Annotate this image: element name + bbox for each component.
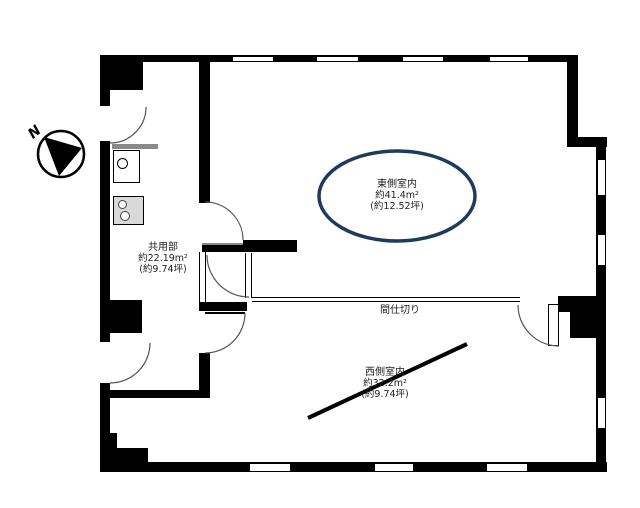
partition-right-block: [558, 296, 597, 312]
west-room-name: 西側室内: [338, 367, 432, 378]
partition-label: 間仕切り: [358, 305, 442, 316]
window-right-1: [598, 160, 605, 195]
wall-bottom: [100, 462, 607, 472]
west-room-area-m2: 約32.2m²: [338, 378, 432, 389]
window-top-4: [490, 57, 528, 61]
pilaster-left-middle: [107, 300, 142, 333]
partition-right-block-lower: [570, 312, 597, 338]
window-top-2: [317, 57, 358, 61]
partition-line: [252, 297, 520, 302]
wall-stub-right: [243, 240, 297, 252]
window-top-1: [233, 57, 273, 61]
door-leaf-corridor-west: [205, 312, 245, 314]
door-arc-entry-lower: [110, 343, 150, 383]
kitchen-stove: [113, 196, 144, 225]
door-arc-center: [207, 255, 249, 297]
window-bottom-2: [375, 464, 413, 471]
wall-westroom-top-bar: [199, 302, 247, 311]
door-leaf-partition: [548, 304, 559, 346]
partition-label-text: 間仕切り: [358, 305, 442, 316]
east-room-area-tsubo: (約12.52坪): [327, 201, 467, 212]
east-room-label: 東側室内 約41.4m² (約12.52坪): [327, 179, 467, 212]
wall-notch-vertical: [567, 55, 578, 143]
east-room-name: 東側室内: [327, 179, 467, 190]
door-leaf-center: [245, 253, 252, 298]
window-top-3: [403, 57, 443, 61]
stove-burner-icon-1: [118, 200, 127, 209]
stove-burner-icon-2: [120, 211, 130, 221]
west-room-label: 西側室内 約32.2m² (約9.74坪): [338, 367, 432, 400]
door-opening-left-lower: [100, 342, 110, 383]
window-right-3: [598, 398, 605, 428]
west-room-area-tsubo: (約9.74坪): [338, 389, 432, 400]
wall-interior-vertical-upper: [199, 58, 210, 203]
door-opening-left-upper: [100, 106, 110, 141]
compass-n-label: N: [25, 122, 44, 142]
door-arc-corridor-west: [205, 313, 245, 353]
door-arc-entry-upper: [110, 107, 146, 143]
floor-plan: N 東側室内 約41.4m² (約12.52坪) 共用部 約22.19m² (約…: [0, 0, 640, 508]
kitchen-faucet-icon: [117, 158, 128, 169]
common-area-tsubo: (約9.74坪): [117, 264, 209, 275]
pilaster-left-small: [108, 433, 117, 448]
window-bottom-1: [250, 464, 290, 471]
wall-corridor-bottom: [105, 390, 205, 398]
compass-circle: [38, 131, 84, 177]
common-area-m2: 約22.19m²: [117, 253, 209, 264]
common-area-name: 共用部: [117, 242, 209, 253]
east-room-area-m2: 約41.4m²: [327, 190, 467, 201]
pilaster-bottom-left: [110, 448, 148, 470]
plan-overlay: N: [0, 0, 640, 508]
window-right-2: [598, 235, 605, 265]
kitchen-counter-bar: [112, 144, 158, 149]
common-area-label: 共用部 約22.19m² (約9.74坪): [117, 242, 209, 275]
compass-needle-icon: [44, 137, 82, 176]
window-bottom-3: [487, 464, 527, 471]
door-arc-east-room: [205, 202, 243, 240]
